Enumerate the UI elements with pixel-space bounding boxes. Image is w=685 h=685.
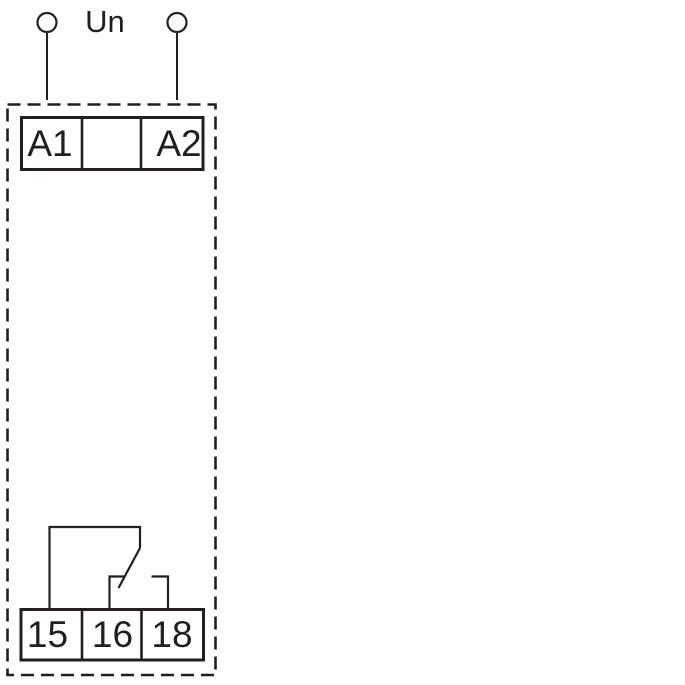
right-supply-terminal-icon: [168, 13, 187, 32]
device-outline-dashed: [8, 105, 216, 676]
relay-contact-symbol: [50, 527, 169, 610]
supply-voltage-label: Un: [83, 3, 127, 41]
terminal-label-a2: A2: [148, 118, 210, 169]
terminal-label-16: 16: [83, 610, 142, 659]
contact-no-hook: [152, 577, 169, 610]
terminal-label-15: 15: [17, 610, 78, 659]
contact-common-path: [50, 527, 141, 610]
left-supply-terminal-icon: [38, 13, 57, 32]
contact-blade: [119, 548, 141, 588]
terminal-label-18: 18: [141, 610, 203, 659]
terminal-label-middle-empty: [82, 118, 141, 169]
wiring-diagram: Un A1 A2 15 16 18: [0, 0, 685, 685]
terminal-label-a1: A1: [20, 118, 80, 169]
diagram-linework: [0, 0, 685, 685]
